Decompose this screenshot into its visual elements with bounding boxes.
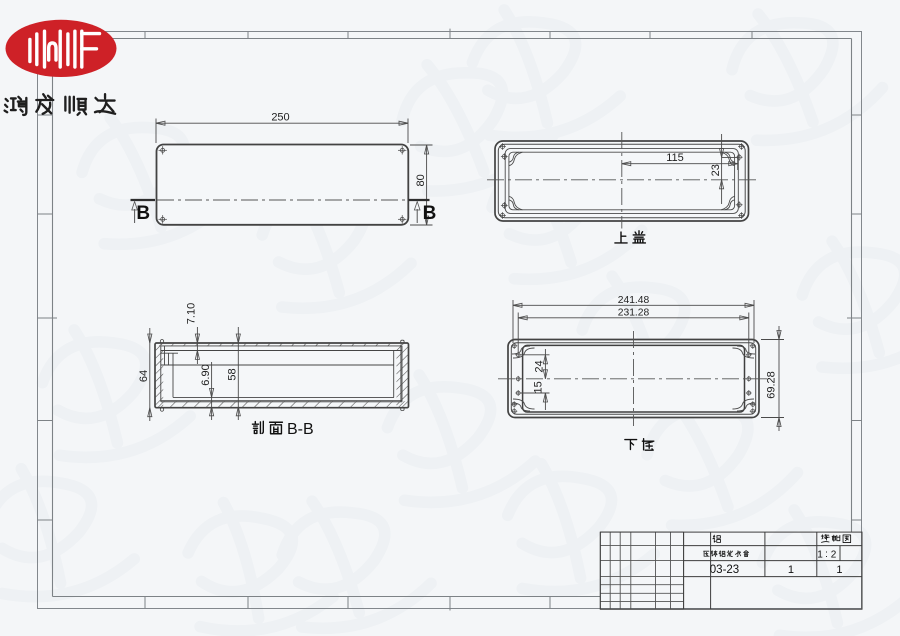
svg-text:250: 250 (271, 112, 289, 124)
svg-text:B: B (136, 203, 150, 224)
svg-text:6.90: 6.90 (200, 364, 212, 385)
svg-text:80: 80 (415, 174, 427, 186)
svg-text:B-B: B-B (287, 421, 314, 438)
svg-text:B: B (423, 203, 437, 224)
svg-text:03-23: 03-23 (710, 564, 739, 576)
svg-text:1: 1 (817, 549, 823, 560)
svg-text:1: 1 (836, 564, 842, 576)
svg-text:69.28: 69.28 (766, 371, 778, 399)
svg-text:23: 23 (710, 164, 722, 176)
svg-text:231.28: 231.28 (618, 307, 650, 318)
svg-text:1: 1 (788, 564, 794, 576)
svg-text:58: 58 (226, 368, 238, 380)
svg-text:115: 115 (666, 152, 684, 164)
svg-text:7.10: 7.10 (186, 303, 198, 324)
svg-text::: : (825, 549, 828, 560)
svg-text:241.48: 241.48 (618, 295, 650, 306)
svg-text:24: 24 (533, 360, 545, 372)
svg-text:64: 64 (138, 370, 150, 382)
svg-text:2: 2 (831, 549, 837, 560)
svg-text:15: 15 (532, 381, 544, 393)
